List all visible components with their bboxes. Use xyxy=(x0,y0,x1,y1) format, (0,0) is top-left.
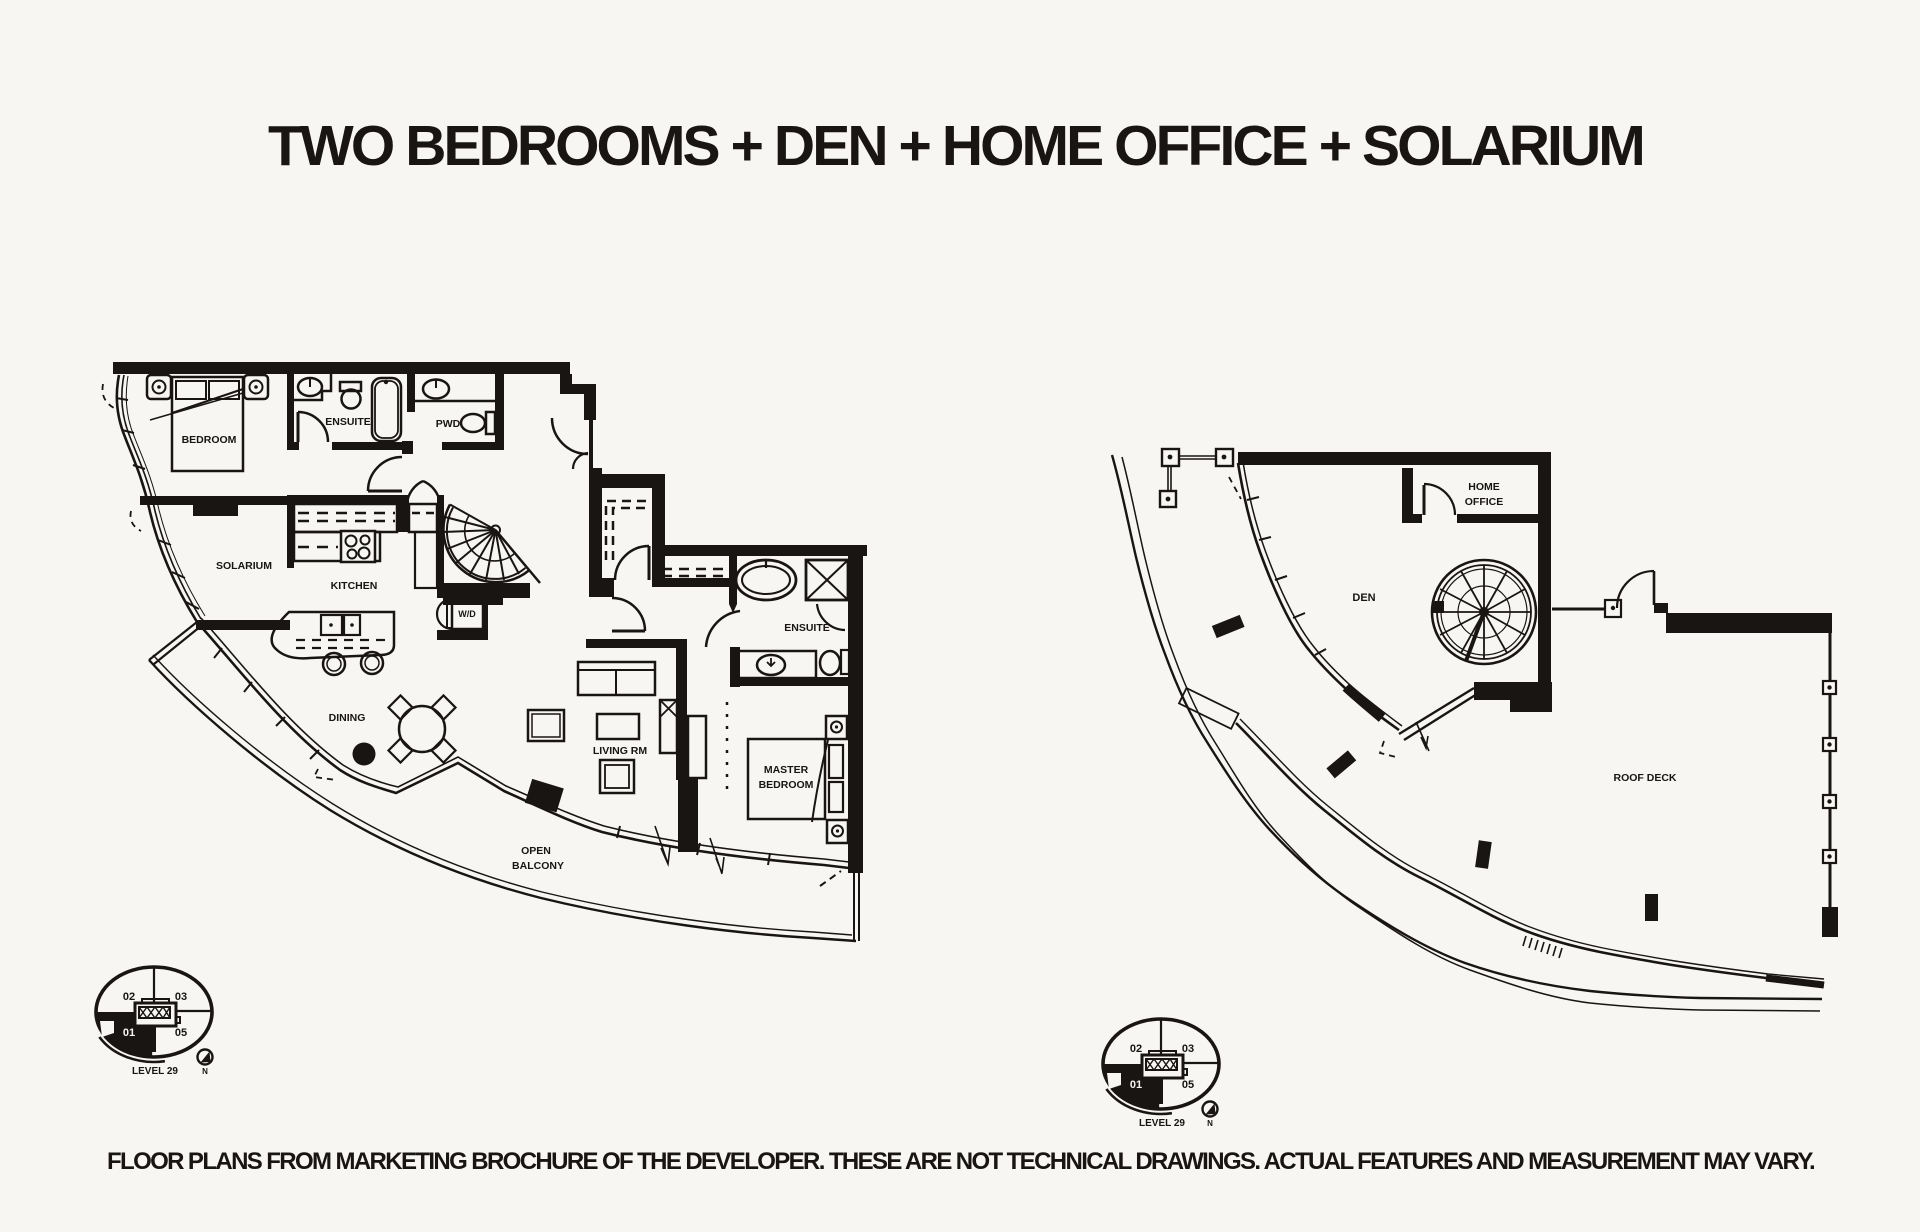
svg-text:LEVEL 29: LEVEL 29 xyxy=(1139,1118,1185,1129)
svg-text:DINING: DINING xyxy=(329,712,366,724)
svg-text:03: 03 xyxy=(175,991,187,1003)
svg-text:ENSUITE: ENSUITE xyxy=(784,622,830,634)
svg-text:03: 03 xyxy=(1182,1043,1194,1055)
svg-text:DEN: DEN xyxy=(1352,592,1375,604)
svg-text:BEDROOM: BEDROOM xyxy=(759,779,814,791)
svg-text:N: N xyxy=(1207,1119,1213,1128)
svg-text:ENSUITE: ENSUITE xyxy=(325,416,371,428)
svg-text:05: 05 xyxy=(1182,1079,1194,1091)
svg-text:HOME: HOME xyxy=(1468,481,1500,493)
svg-text:TWO BEDROOMS + DEN + HOME OFFI: TWO BEDROOMS + DEN + HOME OFFICE + SOLAR… xyxy=(268,114,1643,178)
svg-text:BEDROOM: BEDROOM xyxy=(182,434,237,446)
svg-text:FLOOR PLANS FROM MARKETING BRO: FLOOR PLANS FROM MARKETING BROCHURE OF T… xyxy=(107,1148,1815,1175)
svg-text:SOLARIUM: SOLARIUM xyxy=(216,560,272,572)
svg-text:OPEN: OPEN xyxy=(521,845,551,857)
svg-text:W/D: W/D xyxy=(458,609,476,619)
svg-text:N: N xyxy=(202,1067,208,1076)
svg-text:OFFICE: OFFICE xyxy=(1465,496,1504,508)
svg-text:LEVEL 29: LEVEL 29 xyxy=(132,1066,178,1077)
svg-text:02: 02 xyxy=(123,991,135,1003)
svg-text:BALCONY: BALCONY xyxy=(512,860,564,872)
svg-text:KITCHEN: KITCHEN xyxy=(331,580,378,592)
svg-text:01: 01 xyxy=(123,1027,135,1039)
svg-text:01: 01 xyxy=(1130,1079,1142,1091)
svg-text:02: 02 xyxy=(1130,1043,1142,1055)
svg-text:LIVING RM: LIVING RM xyxy=(593,745,648,757)
svg-text:PWD: PWD xyxy=(436,418,461,430)
svg-text:05: 05 xyxy=(175,1027,187,1039)
svg-text:MASTER: MASTER xyxy=(764,764,809,776)
svg-text:ROOF DECK: ROOF DECK xyxy=(1614,772,1677,784)
